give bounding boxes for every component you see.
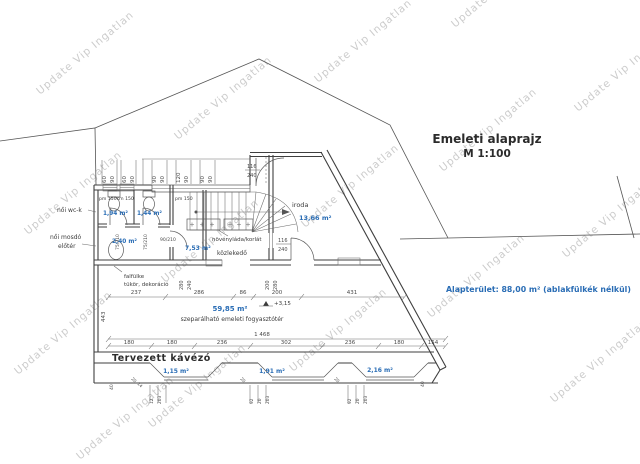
dim-top-window: 90 <box>200 176 206 183</box>
dim-niche-depth: 280 <box>273 280 279 290</box>
watermark-text: Update Vip Ingatlan <box>12 289 114 377</box>
watermark-text: Update Vip Ingatlan <box>425 232 527 320</box>
label-parapet-left: pm 150cm 150 <box>99 196 134 202</box>
dim-top-window: 90 <box>208 176 214 183</box>
drawing-scale: M 1:100 <box>463 148 511 160</box>
dim-bottom-seg: 154 <box>428 340 439 346</box>
watermark-text: Update Vip Ingatlan <box>22 149 124 237</box>
dim-door-75: 75/210 <box>143 234 149 250</box>
watermark-text: Update Vip Ingatlan <box>548 317 640 405</box>
area-wc1: 1,94 m² <box>103 210 128 217</box>
dim-niche3-small: 203 <box>363 396 369 404</box>
dim-top-window: 90 <box>184 176 190 183</box>
label-main-room: szeparálható emeleti fogyasztótér <box>181 316 284 323</box>
dim-window-116-h: 240 <box>247 173 257 179</box>
dim-width-seg: 86 <box>240 290 247 296</box>
window-office-glass <box>270 233 273 248</box>
dim-top-boundary <box>142 159 250 185</box>
walls <box>94 150 446 383</box>
dim-bottom-seg: 180 <box>124 340 135 346</box>
dim-width-seg: 286 <box>194 290 205 296</box>
level-marker-triangle <box>263 301 269 306</box>
total-area-note: Alapterület: 88,00 m² (ablakfülkék nélkü… <box>446 285 631 294</box>
dim-niche2-small: 20 <box>257 398 263 404</box>
dim-office-window-h: 240 <box>278 247 288 253</box>
dim-forty-right: 40 <box>420 381 426 387</box>
wall-bath-east <box>170 185 173 260</box>
watermark-text: Update Vip Ingatlan <box>449 0 551 30</box>
stair-arrow-start <box>195 211 198 214</box>
leader-wallniche-label <box>114 266 122 272</box>
dim-window-116-w: 116 <box>247 164 257 170</box>
watermark-layer: Update Vip Ingatlan Update Vip Ingatlan … <box>12 0 640 462</box>
label-washroom: női mosdó <box>50 234 81 241</box>
dim-bottom-seg: 180 <box>167 340 178 346</box>
dim-top-window: 60 <box>122 176 128 183</box>
area-corridor: 7,53 m² <box>185 245 211 252</box>
stair-arrow-head <box>282 209 290 215</box>
wall-stall-front <box>98 224 170 227</box>
label-level: +3,15 <box>274 301 291 307</box>
dim-niche-depth: 200 <box>265 280 271 290</box>
dim-top-window: 90 <box>152 176 158 183</box>
dim-top-window: 90 <box>110 176 116 183</box>
wall-office-top <box>250 153 322 157</box>
area-main-room: 59,85 m² <box>213 305 248 313</box>
dim-niche1-small: 12 <box>149 398 155 404</box>
dim-bottom-seg: 236 <box>217 340 228 346</box>
dim-top-window: 60 <box>102 176 108 183</box>
dim-width-seg: 237 <box>131 290 142 296</box>
dim-niche3-small: 92 <box>347 398 353 404</box>
dim-room-depth: 443 <box>101 311 107 322</box>
watermark-text: Update Vip Ingatlan <box>172 54 274 142</box>
dim-width-seg: 200 <box>272 290 283 296</box>
label-anteroom: előtér <box>58 243 76 250</box>
dim-top-window: 90 <box>130 176 136 183</box>
label-office: iroda <box>292 201 308 209</box>
label-wallniche-2: tükör, dekoráció <box>124 281 169 288</box>
dim-niche-depth: 240 <box>187 280 193 290</box>
label-wc-group: női wc-k <box>57 207 82 214</box>
leader-wc-label <box>88 210 96 212</box>
label-wallniche-1: falfülke <box>124 274 145 280</box>
door-swing-corridor <box>256 158 284 186</box>
wall-hatch-2 <box>338 258 360 265</box>
door-swing-office <box>291 238 314 260</box>
dim-forty-left: 40 <box>109 384 115 390</box>
dim-top-extensions <box>102 160 215 184</box>
dim-niche3-small: 20 <box>355 398 361 404</box>
dim-niche-depth: 280 <box>179 280 185 290</box>
dim-niche2-small: 92 <box>249 398 255 404</box>
floorplan-drawing: Update Vip Ingatlan Update Vip Ingatlan … <box>0 0 640 464</box>
drawing-title: Emeleti alaprajz <box>432 132 541 146</box>
area-niche1: 1,15 m² <box>163 368 189 375</box>
label-corridor: közlekedő <box>217 250 247 257</box>
dim-reveal: 14 <box>136 381 144 389</box>
watermark-text: Update Vip Ingatlan <box>572 26 640 114</box>
watermark-text: Update Vip Ingatlan <box>34 9 136 97</box>
area-niche3: 2,16 m² <box>367 367 393 374</box>
dim-top-window: 120 <box>176 172 182 183</box>
dim-top-window: 90 <box>160 176 166 183</box>
area-niche2: 1,91 m² <box>259 368 285 375</box>
dim-door-90: 90/210 <box>160 237 176 243</box>
watermark-text: Update Vip Ingatlan <box>287 286 389 374</box>
dim-total-width: 1 468 <box>254 332 270 338</box>
label-planter: növényláda/korlát <box>212 236 262 243</box>
dim-bottom-seg: 302 <box>281 340 292 346</box>
area-anteroom: 2,40 m² <box>112 238 137 245</box>
area-wc2: 1,44 m² <box>137 210 162 217</box>
dim-niche1-small: 203 <box>157 396 163 404</box>
label-parapet-right: pm 150 <box>175 196 193 202</box>
dim-bottom-seg: 236 <box>345 340 356 346</box>
boundary-line-west <box>0 128 96 185</box>
watermark-text: Update Vip Ingatlan <box>437 86 539 174</box>
watermark-text: Update Vip Ingatlan <box>312 0 414 85</box>
dim-office-window-w: 116 <box>278 238 288 244</box>
dim-bottom-seg: 180 <box>394 340 405 346</box>
dim-niche2-small: 203 <box>265 396 271 404</box>
scanned-floorplan-page: Update Vip Ingatlan Update Vip Ingatlan … <box>0 0 640 464</box>
area-office: 13,66 m² <box>299 214 332 222</box>
dim-width-seg: 431 <box>347 290 358 296</box>
label-cafe: Tervezett kávézó <box>112 353 211 364</box>
wall-slanted-east <box>321 150 446 383</box>
